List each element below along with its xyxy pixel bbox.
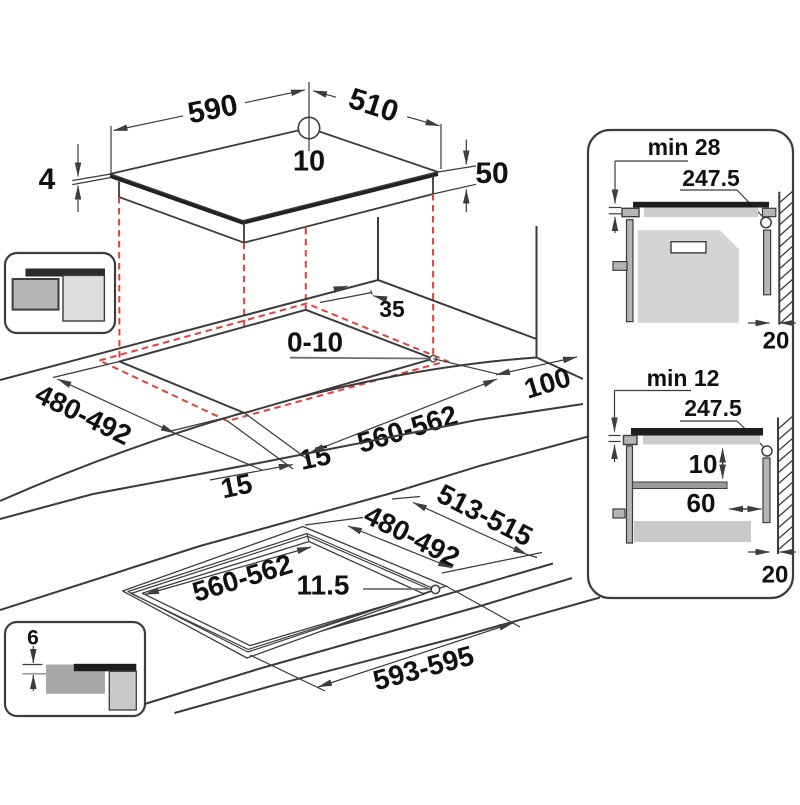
- svg-text:11.5: 11.5: [297, 569, 350, 600]
- svg-text:4: 4: [39, 163, 56, 196]
- svg-text:35: 35: [379, 296, 405, 322]
- svg-text:10: 10: [293, 146, 325, 178]
- svg-text:247.5: 247.5: [682, 165, 740, 191]
- svg-text:15: 15: [218, 468, 255, 505]
- svg-text:min 28: min 28: [648, 134, 721, 160]
- svg-text:20: 20: [762, 561, 789, 588]
- svg-text:50: 50: [475, 157, 508, 190]
- svg-text:10: 10: [689, 449, 718, 479]
- svg-text:0-10: 0-10: [287, 326, 343, 357]
- svg-text:247.5: 247.5: [684, 395, 742, 421]
- svg-text:20: 20: [763, 327, 790, 354]
- svg-text:min 12: min 12: [647, 365, 720, 391]
- svg-text:15: 15: [297, 439, 334, 476]
- svg-text:60: 60: [687, 488, 716, 518]
